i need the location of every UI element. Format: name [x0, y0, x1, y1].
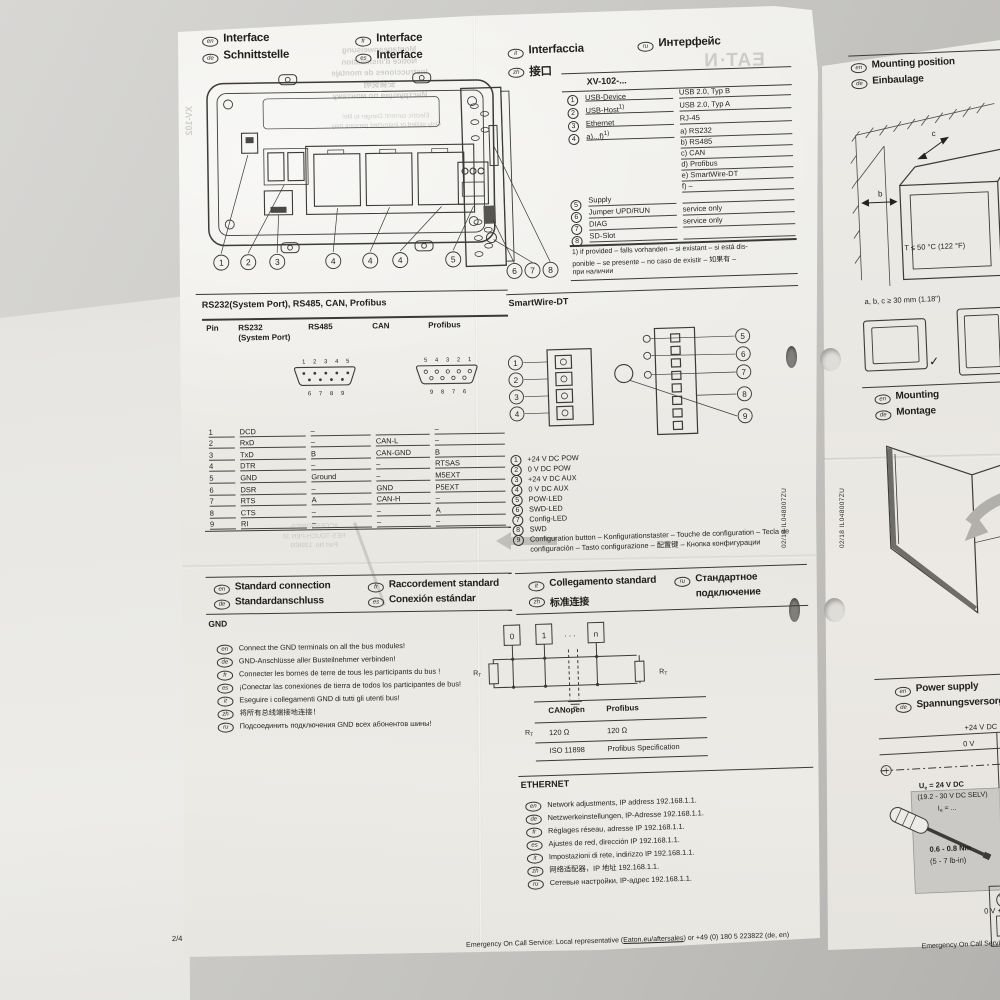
- col-header-can: CAN: [372, 321, 389, 330]
- row-num: 4: [568, 134, 579, 145]
- cell: –: [311, 424, 371, 436]
- label-text: Ethernet: [586, 118, 615, 128]
- legend-text: 0 V DC POW: [528, 463, 571, 473]
- section-title-mounting: Mounting: [895, 389, 939, 402]
- cell: RTS: [241, 494, 307, 507]
- callout-1: 1: [219, 258, 224, 268]
- device-side-view-diagram: 6 7 8: [446, 71, 573, 285]
- bus-dots: . . .: [564, 629, 575, 638]
- label-sup: 1): [619, 103, 625, 110]
- lang-badge: zh: [218, 709, 234, 719]
- label-text: Supply: [588, 195, 611, 205]
- row-num: 5: [570, 200, 581, 211]
- cell: –: [376, 469, 430, 481]
- callout-7: 7: [530, 265, 535, 275]
- footnote-line: ponible – se presente – no caso de exist…: [572, 254, 736, 269]
- canopen-header: CANopen: [548, 705, 585, 715]
- pin-num: 3: [324, 359, 327, 365]
- ethernet-text: Impostazioni di rete, indirizzo IP 192.1…: [549, 848, 695, 862]
- lang-badge-en: en: [874, 394, 890, 404]
- lang-badge-de: de: [202, 54, 218, 64]
- row-label: Ethernet: [586, 114, 674, 128]
- ethernet-title: ETHERNET: [521, 778, 570, 790]
- pin-num: 4: [335, 359, 339, 365]
- torque-lbin-label: (5 - 7 lb-in): [930, 855, 967, 866]
- callout-7: 7: [741, 368, 746, 377]
- cell: GND: [376, 481, 430, 493]
- lang-badge: fr: [526, 827, 542, 837]
- section-title-interfeys: Интерфейс: [658, 35, 721, 49]
- callout-4: 4: [515, 410, 520, 419]
- pin-num: 5: [424, 358, 427, 364]
- cell: Ground: [311, 470, 371, 482]
- cell: –: [377, 515, 431, 527]
- cell: DCD: [240, 424, 306, 437]
- legend-num: 9: [513, 535, 524, 546]
- cell: 1: [209, 425, 235, 437]
- cell: –: [312, 505, 372, 517]
- lang-badge-es: es: [368, 597, 384, 607]
- lang-badge-de: de: [214, 600, 230, 610]
- section-title-interface-de: Schnittstelle: [223, 49, 289, 62]
- cell: 8: [210, 507, 236, 519]
- page-number: 2/4: [172, 934, 183, 943]
- power-terminal-block: [547, 349, 593, 426]
- lang-badge-de: de: [851, 79, 867, 89]
- ie-rest: = ...: [942, 805, 956, 813]
- legend-text: 0 V DC AUX: [528, 483, 568, 493]
- callout-4c: 4: [398, 255, 403, 265]
- divider: [515, 564, 807, 574]
- lang-badge: de: [526, 814, 542, 824]
- lang-badge: zh: [527, 866, 543, 876]
- ue-label: Ue = 24 V DC: [919, 779, 965, 791]
- section-title-coll-std: Collegamento standard: [549, 575, 656, 589]
- lang-badge-fr: fr: [355, 36, 371, 46]
- divider: [561, 66, 791, 75]
- pin-num: 6: [308, 391, 311, 397]
- cell: CAN-GND: [376, 446, 430, 458]
- section-title-interface-fr: Interface: [376, 32, 422, 45]
- callout-leaders: [491, 144, 551, 264]
- v0plus-label: 0 V +: [984, 906, 1000, 916]
- checkmark: ✓: [929, 354, 940, 368]
- cell: GND: [240, 471, 306, 484]
- pin-num: 7: [452, 389, 455, 395]
- section-title-mounting-position: Mounting position: [871, 56, 955, 70]
- bus-node-n: n: [594, 629, 599, 638]
- cell: 5: [209, 472, 235, 484]
- callout-2: 2: [514, 376, 519, 385]
- mounting-position-diagram: b c: [846, 89, 1000, 295]
- cell: –: [311, 482, 371, 494]
- cell: CAN-L: [376, 434, 430, 446]
- legend-text: POW-LED: [529, 494, 563, 504]
- section-title-std-ru-2: подключение: [696, 586, 761, 599]
- callout-4a: 4: [331, 256, 336, 266]
- cell: 2: [209, 437, 235, 449]
- rt-sub: T: [530, 732, 533, 738]
- lang-badge: fr: [217, 670, 233, 680]
- col-header-rs485: RS485: [308, 322, 333, 331]
- row-num: 3: [568, 121, 579, 132]
- cell: RI: [241, 517, 307, 530]
- cell: CTS: [241, 506, 307, 519]
- cell: RxD: [240, 436, 306, 449]
- col-header-pin: Pin: [206, 324, 219, 333]
- cell: DTR: [240, 459, 306, 472]
- pow-led: [643, 335, 650, 342]
- section-title-std-conn-en: Standard connection: [235, 580, 331, 592]
- ethernet-text: Réglages réseau, adresse IP 192.168.1.1.: [548, 822, 685, 835]
- legend-text: Config-LED: [529, 513, 567, 523]
- lang-badge-it: it: [508, 49, 524, 59]
- lang-badge: ru: [218, 722, 234, 732]
- bus-node-1: 1: [542, 631, 547, 640]
- row-value: USB 2.0, Typ A: [679, 97, 791, 112]
- cell: [376, 423, 430, 435]
- lang-badge-en: en: [202, 37, 218, 47]
- row-label: a)...f)1): [586, 127, 674, 141]
- gnd-item-fr: frConnecter les bornes de terre de tous …: [217, 667, 440, 681]
- rt-label-left: RT: [473, 670, 481, 679]
- column-interface-mid: it Interfaccia zh 接口 ru Интерфейс: [445, 22, 824, 913]
- cell: 6: [209, 483, 235, 495]
- divider: [535, 717, 707, 723]
- lang-badge: en: [525, 801, 541, 811]
- label-text: SD-Slot: [589, 231, 615, 241]
- label-text: USB-Host: [585, 105, 619, 115]
- cell: B: [311, 447, 371, 459]
- pin-num: 7: [319, 391, 322, 397]
- pin-num: 3: [446, 357, 449, 363]
- row-num: 2: [567, 108, 578, 119]
- footnote-line: при наличии: [572, 268, 613, 276]
- config-button: [615, 364, 634, 383]
- row-label: USB-Device: [585, 88, 673, 102]
- rt-sub: T: [664, 671, 667, 677]
- lang-badge: it: [217, 696, 233, 706]
- gnd-item-de: deGND-Anschlüsse aller Busteilnehmer ver…: [217, 654, 396, 667]
- section-title-montage: Montage: [896, 405, 936, 418]
- cell: 7: [210, 495, 236, 507]
- punch-hole: [820, 348, 841, 371]
- gnd-subtitle: GND: [208, 619, 227, 629]
- section-title-einbaulage: Einbaulage: [872, 73, 924, 86]
- gnd-item-it: itEseguire i collegamenti GND di tutti g…: [217, 693, 399, 706]
- pin-table-title: RS232(System Port), RS485, CAN, Profibus: [202, 297, 387, 310]
- clearance-note: a, b, c ≥ 30 mm (1.18"): [864, 294, 940, 306]
- ethernet-text: 网络适配器，IP 地址 192.168.1.1.: [549, 862, 659, 874]
- divider: [536, 755, 708, 761]
- cell: –: [312, 516, 372, 528]
- legend-item: 9Configuration button – Konfigurationsta…: [513, 526, 793, 554]
- profibus-header: Profibus: [606, 703, 639, 713]
- ue-rest: = 24 V DC: [927, 779, 964, 790]
- callout-4b: 4: [368, 255, 373, 265]
- power-supply-diagram: [866, 706, 1000, 968]
- row-num: 7: [571, 224, 582, 235]
- gnd-item-ru: ruПодсоединить подключения GND всех абон…: [218, 719, 432, 732]
- lang-badge: en: [217, 644, 233, 654]
- cell: –: [376, 457, 430, 469]
- row-label: USB-Host1): [585, 101, 673, 115]
- pin-num: 5: [346, 359, 349, 365]
- cell: A: [312, 493, 372, 505]
- row-value: [683, 225, 795, 240]
- wall-hatching: [848, 102, 1000, 287]
- vent-holes: [470, 103, 493, 256]
- doc-code-main: 02/18 IL048007ZU: [781, 438, 788, 548]
- divider: [506, 285, 798, 295]
- torque-label: 0.6 - 0.8 Nm: [929, 843, 971, 854]
- ethernet-text: Network adjustments, IP address 192.168.…: [547, 795, 697, 809]
- xv102-title: XV-102-...: [586, 75, 626, 86]
- ie-label: Ie = ...: [938, 805, 957, 814]
- legend-text: SWD: [529, 524, 546, 534]
- lang-badge-zh: zh: [529, 597, 545, 607]
- ethernet-item-it: itImpostazioni di rete, indirizzo IP 192…: [527, 848, 695, 864]
- gnd-text: Подсоединить подключения GND всех абонен…: [240, 719, 432, 731]
- lang-badge-fr: fr: [368, 582, 384, 592]
- label-text: USB-Device: [585, 92, 626, 102]
- lang-badge-en: en: [214, 585, 230, 595]
- legend-text: SWD-LED: [529, 504, 563, 514]
- callout-3: 3: [275, 257, 280, 267]
- ethernet-text: Ajustes de red, dirección IP 192.168.1.1…: [548, 835, 680, 848]
- legend-text: Configuration button – Konfigurationstas…: [530, 526, 790, 553]
- lang-badge: it: [527, 853, 543, 863]
- lang-badge-ru: ru: [637, 41, 653, 51]
- gnd-item-zh: zh将所有总线端接地连接！: [218, 707, 320, 719]
- bus-node-0: 0: [510, 632, 515, 641]
- usb-b-port: [241, 133, 257, 153]
- usb-a-ports: [264, 148, 308, 185]
- rt-canopen-value: 120 Ω: [549, 727, 569, 737]
- punch-hole: [824, 598, 845, 622]
- lang-badge-en: en: [895, 687, 911, 697]
- profibus-spec-value: Profibus Specification: [607, 742, 679, 753]
- label-text: a)...f): [586, 132, 604, 142]
- section-title-bzlj: 标准连接: [550, 593, 590, 609]
- divider: [518, 767, 813, 778]
- section-title-power-supply: Power supply: [916, 681, 979, 695]
- callout-8: 8: [742, 390, 747, 399]
- rt-label-right: RT: [659, 668, 667, 677]
- dimension-arrows: [860, 137, 951, 206]
- smartwire-title: SmartWire-DT: [508, 296, 568, 308]
- gnd-item-es: es¡Conectar las conexiones de tierra de …: [217, 679, 461, 693]
- cell: 3: [209, 449, 235, 461]
- dim-label-c: c: [931, 129, 935, 138]
- label-text: DIAG: [589, 219, 608, 229]
- cell: –: [311, 458, 371, 470]
- divider: [874, 673, 1000, 681]
- panel-outline: [898, 149, 1000, 279]
- cell: 4: [209, 460, 235, 472]
- photo-of-instruction-leaflet: Montageanweisung Notice d'installation I…: [0, 0, 1000, 1000]
- cell: –: [377, 504, 431, 516]
- gnd-text: Eseguire i collegamenti GND di tutti gli…: [239, 693, 399, 704]
- gnd-text: Connecter les bornes de terre de tous le…: [239, 667, 440, 679]
- ethernet-text: Netzwerkeinstellungen, IP-Adresse 192.16…: [548, 808, 704, 822]
- cell: –: [311, 435, 371, 447]
- diag-button: [486, 232, 496, 242]
- pin-num: 1: [302, 359, 305, 365]
- seal-strip: [890, 445, 976, 612]
- ethernet-item-ru: ruСетевые настройки, IP-адрес 192.168.1.…: [528, 874, 692, 890]
- gnd-text: ¡Conectar las conexiones de tierra de to…: [239, 679, 461, 691]
- db9-male-connector-diagram: 1 2 3 4 5 6 7 8 9: [285, 354, 366, 401]
- row-num: 1: [567, 95, 578, 106]
- lang-badge-ru: ru: [674, 577, 690, 587]
- rt-row-label: RT: [525, 730, 533, 739]
- col-header-rs232: RS232: [238, 323, 263, 332]
- v0-label: 0 V: [963, 739, 975, 748]
- callout-2: 2: [246, 257, 251, 267]
- pin-num: 4: [435, 358, 439, 364]
- legend-text: +24 V DC AUX: [528, 473, 577, 484]
- smartwire-diagram: 1 2 3 4 5 6 7 8 9: [504, 305, 768, 451]
- pin-num: 9: [430, 390, 433, 396]
- gnd-item-en: enConnect the GND terminals on all the b…: [217, 641, 405, 654]
- row-value: RJ-45: [680, 110, 792, 125]
- gnd-text: 将所有总线端接地连接！: [240, 707, 320, 717]
- cell: DSR: [240, 482, 306, 495]
- orientation-thumbnails: [859, 305, 1000, 387]
- label-sup: 1): [604, 130, 610, 137]
- lang-badge-de: de: [875, 410, 891, 420]
- callout-6: 6: [741, 350, 746, 359]
- divider: [535, 737, 707, 743]
- row-label: SD-Slot: [589, 229, 677, 243]
- gnd-text: GND-Anschlüsse aller Busteilnehmer verbi…: [239, 654, 396, 665]
- row-num: 6: [571, 212, 582, 223]
- lang-badge: es: [217, 683, 233, 693]
- cell: CAN-H: [377, 492, 431, 504]
- ethernet-item-zh: zh网络适配器，IP 地址 192.168.1.1.: [527, 862, 659, 877]
- callout-8: 8: [548, 265, 553, 275]
- section-title-interface-es: Interface: [376, 49, 422, 62]
- lang-badge-es: es: [355, 53, 371, 63]
- section-title-std-ru-1: Стандартное: [695, 571, 757, 584]
- lang-badge: de: [217, 657, 233, 667]
- ethernet-text: Сетевые настройки, IP-адрес 192.168.1.1.: [550, 874, 692, 887]
- divider: [848, 49, 1000, 57]
- rt-sub: T: [478, 673, 481, 679]
- lang-badge-en: en: [851, 63, 867, 73]
- gnd-text: Connect the GND terminals on all the bus…: [239, 641, 405, 652]
- v24-label: +24 V DC: [964, 722, 997, 732]
- callout-9: 9: [743, 412, 748, 421]
- legend-text: +24 V DC POW: [527, 453, 579, 464]
- pin-num: 2: [313, 359, 316, 365]
- pin-num: 9: [341, 391, 344, 397]
- doc-code-right: 02/18 IL048007ZU: [839, 438, 846, 548]
- row-value: USB 2.0, Typ B: [679, 84, 791, 99]
- callout-1: 1: [513, 359, 518, 368]
- cell: 9: [210, 518, 236, 530]
- pin-num: 8: [330, 391, 333, 397]
- callout-3: 3: [514, 393, 519, 402]
- mounting-3d-diagram: [864, 421, 1000, 662]
- col-header-rs232-sub: (System Port): [238, 333, 290, 343]
- pin-num: 8: [441, 390, 444, 396]
- iso-value: ISO 11898: [549, 745, 585, 755]
- section-title-interface-en: Interface: [223, 32, 269, 45]
- callout-6: 6: [512, 266, 517, 276]
- section-title-std-conn-de: Standardanschluss: [235, 595, 324, 607]
- lang-badge-it: it: [528, 581, 544, 591]
- rt-profibus-value: 120 Ω: [607, 726, 627, 736]
- swd-connector-block: [654, 327, 697, 434]
- config-led: [644, 371, 651, 378]
- swd-led: [644, 352, 651, 359]
- dim-label-b: b: [878, 189, 883, 198]
- callout-5: 5: [740, 332, 745, 341]
- callout-leaders: [220, 152, 474, 254]
- label-text: Jumper UPD/RUN: [589, 206, 651, 217]
- jumper-block: [483, 206, 496, 224]
- lang-badge: ru: [528, 879, 544, 889]
- cell: TxD: [240, 448, 306, 461]
- lang-badge: es: [526, 840, 542, 850]
- section-title-interfaccia: Interfaccia: [528, 43, 584, 57]
